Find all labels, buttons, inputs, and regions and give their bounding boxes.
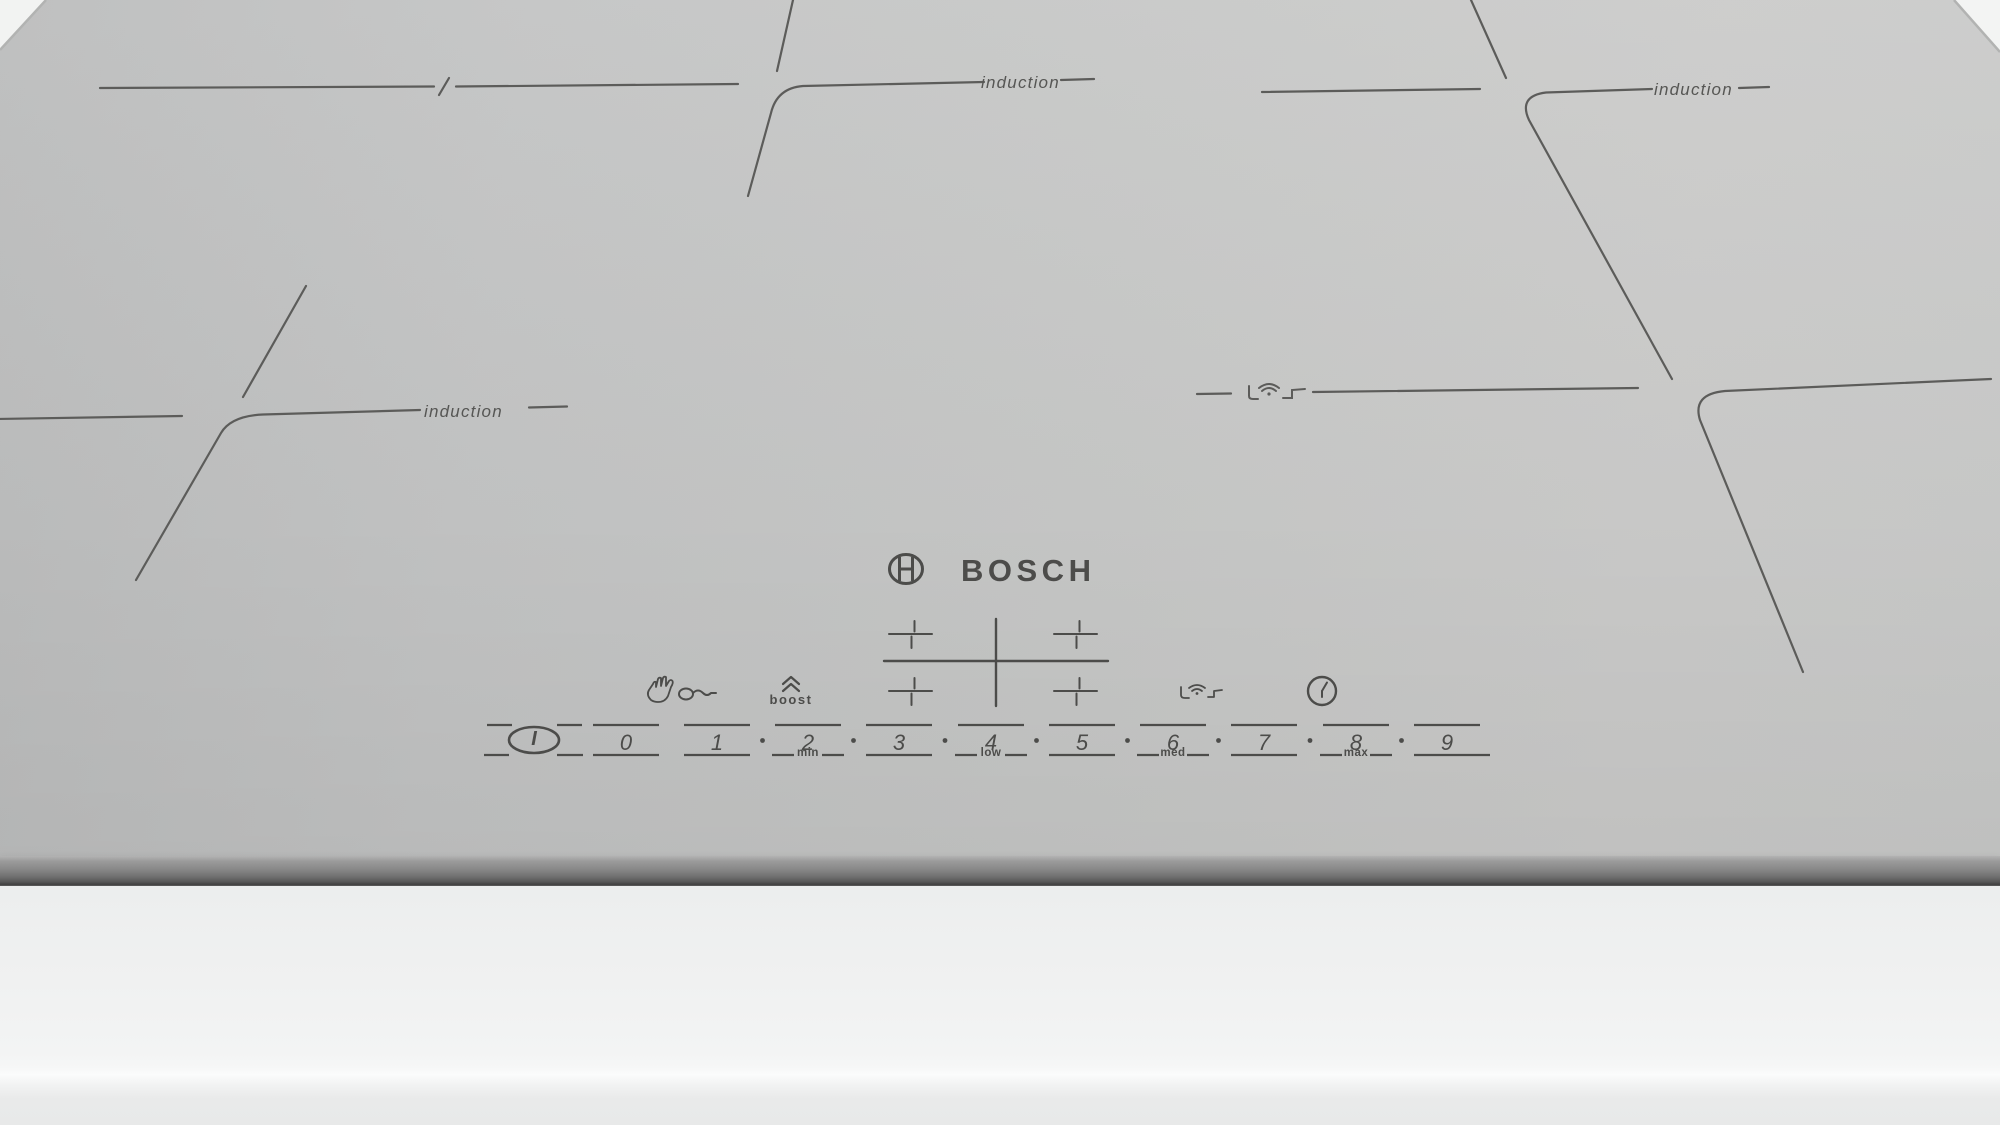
scale-label-med: med (1153, 747, 1193, 759)
bosch-induction-cooktop: induction induction induction BOSCH boos… (0, 0, 2000, 1125)
zone-label-left: induction (424, 402, 503, 422)
power-level-7[interactable]: 7 (1234, 730, 1294, 756)
power-button-label[interactable]: I (514, 728, 554, 751)
cooktop-front-edge (0, 856, 2000, 886)
power-level-0[interactable]: 0 (596, 730, 656, 756)
boost-label[interactable]: boost (765, 692, 817, 707)
zone-select-back-right (1054, 678, 1097, 705)
scale-label-min: min (788, 747, 828, 759)
bosch-logo-icon (890, 555, 923, 584)
scale-label-max: max (1336, 747, 1376, 759)
power-level-1[interactable]: 1 (687, 730, 747, 756)
kitchen-front-panel (0, 886, 2000, 1125)
power-level-5[interactable]: 5 (1052, 730, 1112, 756)
power-level-9[interactable]: 9 (1417, 730, 1477, 756)
zone-label-top-right: induction (1654, 80, 1733, 100)
pan-detection-icon (1181, 685, 1222, 698)
timer-clock-icon[interactable] (1308, 677, 1336, 705)
zone-separator-tick (439, 78, 449, 95)
bosch-logo-text: BOSCH (961, 553, 1095, 589)
hand-icon (648, 677, 673, 702)
glass-corner-top-right (1954, 0, 2000, 52)
zone-marking-left (0, 286, 567, 580)
flex-zone-pan-icon (1249, 384, 1305, 399)
zone-marking-top-center (100, 0, 1094, 196)
zone-label-top-center: induction (981, 73, 1060, 93)
zone-select-front-left (889, 621, 932, 648)
zone-select-front-right (1054, 621, 1097, 648)
zone-select-back-left (889, 678, 932, 705)
zone-marking-top-right (1262, 0, 1769, 379)
zone-marking-right-flex (1197, 379, 1991, 672)
zone-select-cross[interactable] (884, 619, 1108, 706)
glass-corner-top-left (0, 0, 46, 50)
key-icon (679, 689, 716, 700)
scale-label-low: low (971, 747, 1011, 759)
power-level-3[interactable]: 3 (869, 730, 929, 756)
boost-chevrons-icon[interactable] (783, 677, 799, 691)
